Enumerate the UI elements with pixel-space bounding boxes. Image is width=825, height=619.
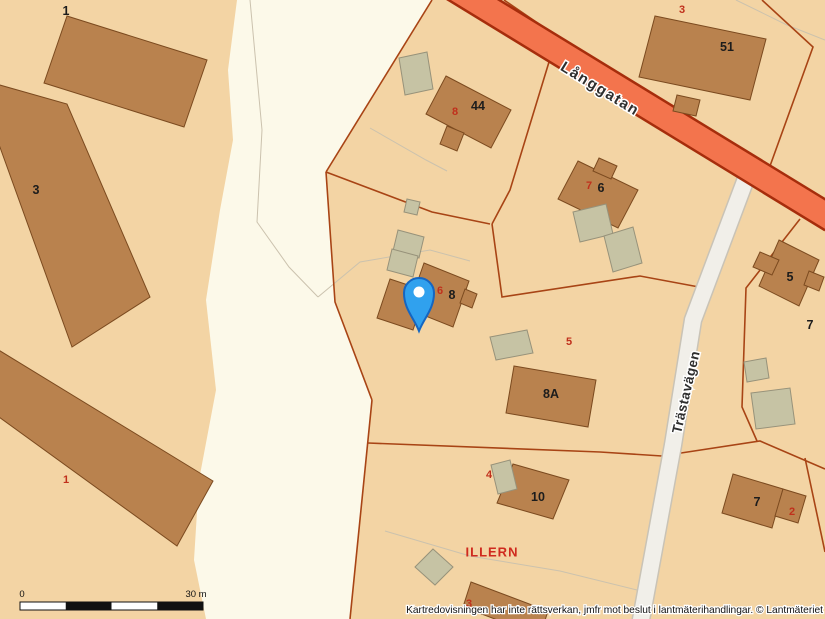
- attribution: Kartredovisningen har inte rättsverkan, …: [406, 605, 823, 616]
- outbuilding: [744, 358, 769, 382]
- block-name-label: ILLERN: [466, 545, 519, 560]
- parcel-number-label: 1: [63, 474, 69, 486]
- map-container: Långgatan Trästavägen 1 3 51 44 6 8 8A 1…: [0, 0, 825, 619]
- building-number-label: 5: [787, 270, 794, 284]
- parcel-number-label: 6: [437, 285, 443, 297]
- building-number-label: 6: [598, 181, 605, 195]
- outbuilding: [399, 52, 433, 95]
- building-number-label: 1: [63, 4, 70, 18]
- pin-center-dot: [414, 287, 425, 298]
- parcel-number-label: 2: [789, 506, 795, 518]
- outbuilding: [751, 388, 795, 429]
- building-number-label: 7: [807, 318, 814, 332]
- building-number-label: 7: [754, 495, 761, 509]
- parcel-number-label: 7: [586, 180, 592, 192]
- building-number-label: 8: [449, 288, 456, 302]
- outbuilding: [404, 199, 420, 215]
- scale-start-label: 0: [19, 589, 24, 600]
- building-number-label: 3: [33, 183, 40, 197]
- building-number-label: 44: [471, 99, 485, 113]
- map-canvas[interactable]: Långgatan Trästavägen 1 3 51 44 6 8 8A 1…: [0, 0, 825, 619]
- building-number-label: 51: [720, 40, 734, 54]
- parcel-number-label: 5: [566, 336, 572, 348]
- parcel-number-label: 8: [452, 106, 458, 118]
- parcel-number-label: 3: [679, 4, 685, 16]
- parcel-number-label: 4: [486, 469, 493, 481]
- building-number-label: 8A: [543, 387, 559, 401]
- scale-end-label: 30 m: [185, 589, 206, 600]
- building-number-label: 10: [531, 490, 545, 504]
